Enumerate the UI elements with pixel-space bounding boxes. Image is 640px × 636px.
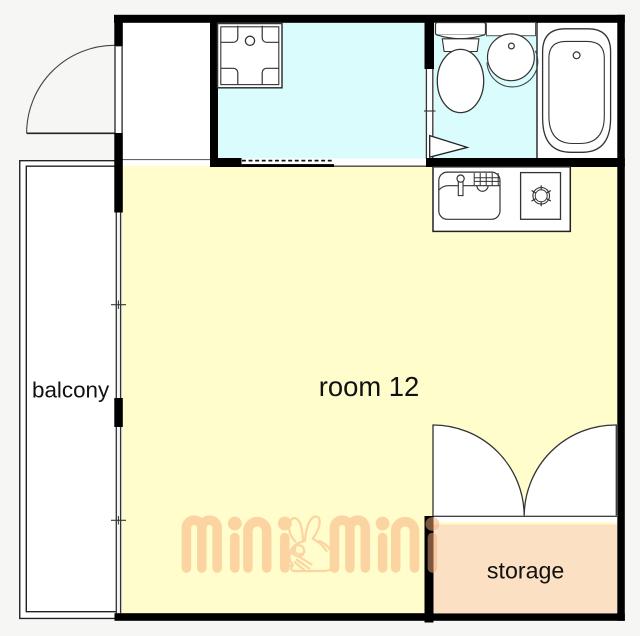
svg-text:storage: storage (487, 557, 564, 583)
svg-text:balcony: balcony (32, 377, 110, 402)
svg-text:room 12: room 12 (319, 371, 419, 402)
